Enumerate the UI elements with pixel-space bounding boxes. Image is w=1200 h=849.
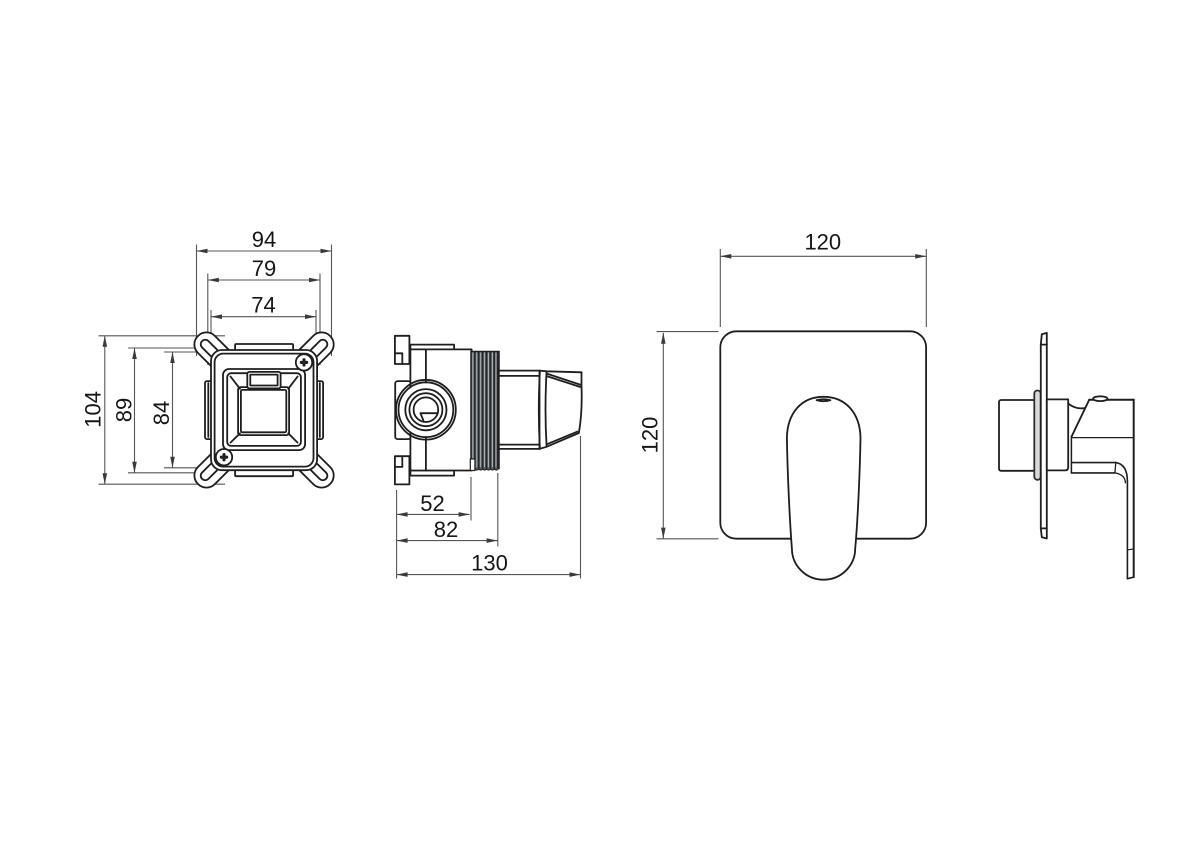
svg-text:130: 130 [471,551,508,576]
svg-text:94: 94 [252,227,276,252]
svg-text:120: 120 [804,230,841,255]
svg-text:84: 84 [149,401,174,425]
svg-text:104: 104 [80,391,105,428]
svg-text:82: 82 [434,517,458,542]
svg-text:74: 74 [251,293,275,318]
svg-text:120: 120 [638,417,663,454]
svg-text:52: 52 [420,491,444,516]
svg-text:79: 79 [252,256,276,281]
svg-text:89: 89 [112,398,137,422]
